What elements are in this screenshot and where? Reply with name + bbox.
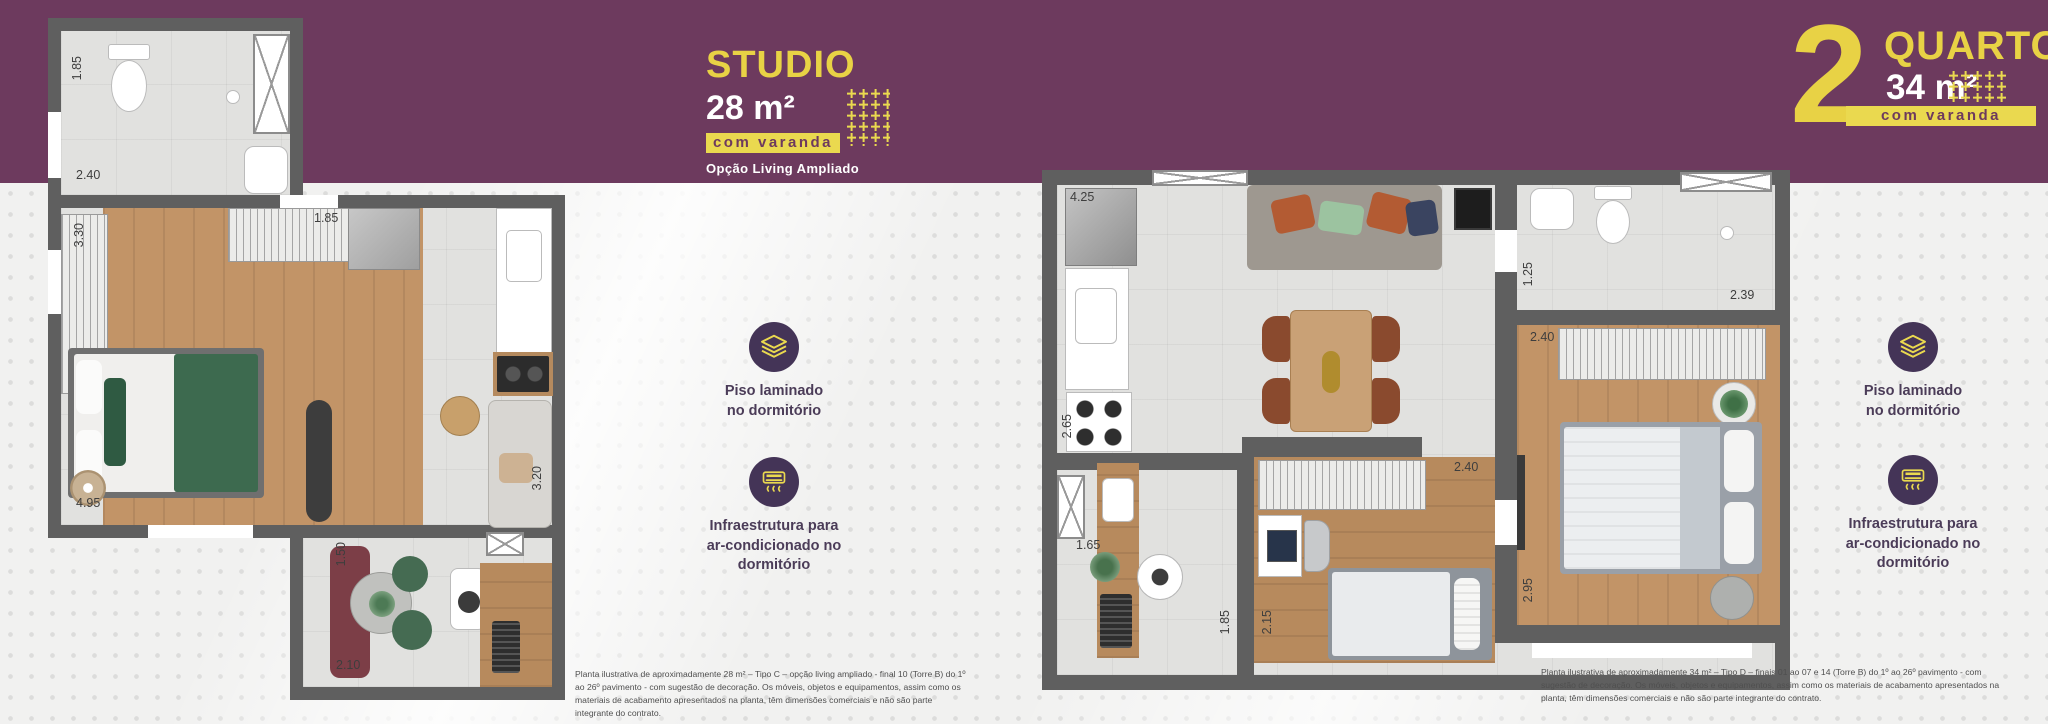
service-sink bbox=[1102, 478, 1134, 522]
wardrobe bbox=[1258, 460, 1426, 510]
top-window bbox=[1152, 170, 1248, 186]
coffee-table bbox=[440, 396, 480, 436]
dim-bedroom1-length: 2.95 bbox=[1521, 578, 1535, 602]
shower-head bbox=[1720, 226, 1734, 240]
service-window bbox=[1057, 475, 1085, 539]
dim-bath-depth: 2.40 bbox=[76, 168, 100, 182]
monitor bbox=[1267, 530, 1297, 562]
air-conditioner-icon bbox=[749, 457, 799, 507]
door-gap bbox=[1495, 500, 1517, 545]
plant bbox=[369, 591, 395, 617]
laminate-floor-icon bbox=[1888, 322, 1938, 372]
single-bed bbox=[1328, 568, 1492, 660]
dim-bedroom2-width: 2.40 bbox=[1454, 460, 1478, 474]
plant bbox=[1720, 390, 1748, 418]
pouf bbox=[392, 556, 428, 592]
sofa bbox=[1247, 185, 1442, 270]
dim-bedroom1-width: 2.40 bbox=[1530, 330, 1554, 344]
dim-balcony-width: 1.50 bbox=[334, 542, 348, 566]
window-gap bbox=[48, 250, 61, 314]
plus-pattern-icon bbox=[846, 88, 890, 146]
cooktop bbox=[493, 352, 553, 396]
dining-chair bbox=[1262, 378, 1290, 424]
dim-living-length: 3.20 bbox=[530, 466, 544, 490]
washer-drum bbox=[458, 591, 480, 613]
cooktop-surface bbox=[497, 356, 549, 392]
toilet bbox=[1596, 200, 1630, 244]
dining-table bbox=[1290, 310, 1372, 432]
bed-duvet bbox=[1332, 572, 1450, 656]
bed-cushion bbox=[104, 378, 126, 466]
sofa-pillow bbox=[1270, 193, 1316, 235]
dim-bath-width: 2.39 bbox=[1730, 288, 1754, 302]
wall-bedroom1-bottom bbox=[1495, 625, 1780, 643]
tv-panel bbox=[306, 400, 332, 522]
balcony-window bbox=[486, 532, 524, 556]
sofa-pillow bbox=[1405, 199, 1439, 237]
amenity-floor-label: Piso laminado no dormitório bbox=[1864, 382, 1962, 421]
balcony-counter bbox=[480, 563, 552, 687]
plant-table bbox=[1712, 382, 1756, 426]
dim-stove-run: 2.65 bbox=[1060, 414, 1074, 438]
bathroom-sink bbox=[244, 146, 288, 194]
shower-window bbox=[253, 34, 290, 134]
door-gap bbox=[1495, 230, 1517, 272]
desk-chair bbox=[1304, 520, 1330, 572]
quartos-badge: com varanda bbox=[1846, 106, 2036, 126]
grill bbox=[1100, 594, 1132, 648]
bed-duvet bbox=[1564, 427, 1684, 569]
double-bed bbox=[1560, 422, 1762, 574]
dining-chair bbox=[1262, 316, 1290, 362]
dim-service-width: 1.65 bbox=[1076, 538, 1100, 552]
dim-bedroom2-length: 2.15 bbox=[1260, 610, 1274, 634]
bathroom-door-gap bbox=[48, 112, 61, 178]
kitchen-sink bbox=[1075, 288, 1117, 344]
dining-chair bbox=[1372, 378, 1400, 424]
dim-hall-width: 1.25 bbox=[1521, 262, 1535, 286]
studio-badge: com varanda bbox=[706, 133, 840, 153]
shower-window bbox=[1680, 172, 1772, 192]
bathroom-sink bbox=[1530, 188, 1574, 230]
toilet bbox=[111, 60, 147, 112]
amenity-ac-label: Infraestrutura para ar-condicionado no d… bbox=[1846, 515, 1981, 574]
quartos-title: QUARTOS bbox=[1884, 24, 2048, 69]
dim-kitchen-width: 1.85 bbox=[314, 211, 338, 225]
quartos-floorplan: 4.25 2.65 1.25 2.39 2.40 2.95 2.40 2.15 … bbox=[1042, 170, 1790, 690]
bed-blanket bbox=[1680, 427, 1720, 569]
washing-machine bbox=[1137, 554, 1183, 600]
air-conditioner-icon bbox=[1888, 455, 1938, 505]
plant bbox=[1090, 552, 1120, 582]
window-gap bbox=[1532, 643, 1752, 658]
studio-title: STUDIO bbox=[706, 44, 986, 87]
shower-head bbox=[226, 90, 240, 104]
wall-living-bedroom2 bbox=[1242, 437, 1422, 457]
amenities-right: Piso laminado no dormitório Infraestrutu… bbox=[1827, 322, 1999, 574]
kitchen-sink bbox=[506, 230, 542, 282]
window-gap bbox=[148, 525, 253, 538]
bed-blanket bbox=[174, 354, 258, 492]
mirror-panel bbox=[348, 208, 420, 270]
wardrobe bbox=[1558, 328, 1766, 380]
marketing-floorplan-page: STUDIO 28 m² com varanda Opção Living Am… bbox=[0, 0, 2048, 724]
amenities-left: Piso laminado no dormitório Infraestrutu… bbox=[688, 322, 860, 576]
table-runner bbox=[1322, 351, 1340, 393]
desk bbox=[1258, 515, 1302, 577]
sofa-pillow bbox=[499, 453, 533, 483]
bed-pillow bbox=[1454, 578, 1480, 650]
dining-chair bbox=[1372, 316, 1400, 362]
dim-balcony-length: 2.10 bbox=[336, 658, 360, 672]
bed-pillow bbox=[1724, 502, 1754, 564]
quartos-disclaimer: Planta ilustrativa de aproximadamente 34… bbox=[1541, 666, 2013, 705]
dim-kitchen-run: 4.25 bbox=[1070, 190, 1094, 204]
side-table bbox=[1710, 576, 1754, 620]
studio-floorplan: 1.85 2.40 3.30 4.95 1.85 3.20 1.50 2.10 bbox=[48, 18, 565, 700]
sofa-pillow bbox=[1317, 200, 1365, 236]
studio-disclaimer: Planta ilustrativa de aproximadamente 28… bbox=[575, 668, 967, 720]
dim-bedroom-width: 3.30 bbox=[72, 223, 86, 247]
tv-panel bbox=[1454, 188, 1492, 230]
grill bbox=[492, 621, 520, 673]
studio-subtitle: Opção Living Ampliado bbox=[706, 161, 986, 176]
wall-bath-bedroom1 bbox=[1495, 310, 1780, 325]
door-gap bbox=[280, 195, 338, 208]
dim-bath-width: 1.85 bbox=[70, 56, 84, 80]
toilet bbox=[108, 44, 150, 60]
dim-service-length: 1.85 bbox=[1218, 610, 1232, 634]
toilet bbox=[1594, 186, 1632, 200]
amenity-ac-label: Infraestrutura para ar-condicionado no d… bbox=[707, 517, 842, 576]
wall-hall-bedroom2 bbox=[1237, 453, 1254, 690]
pouf bbox=[392, 610, 432, 650]
tv-strip bbox=[1517, 455, 1525, 550]
bed-pillow bbox=[1724, 430, 1754, 492]
plus-pattern-icon bbox=[1948, 70, 2006, 104]
sofa bbox=[488, 400, 552, 528]
bed-pillow bbox=[76, 360, 102, 414]
stove bbox=[1066, 392, 1132, 452]
laminate-floor-icon bbox=[749, 322, 799, 372]
amenity-floor-label: Piso laminado no dormitório bbox=[725, 382, 823, 421]
dim-room-length: 4.95 bbox=[76, 496, 100, 510]
